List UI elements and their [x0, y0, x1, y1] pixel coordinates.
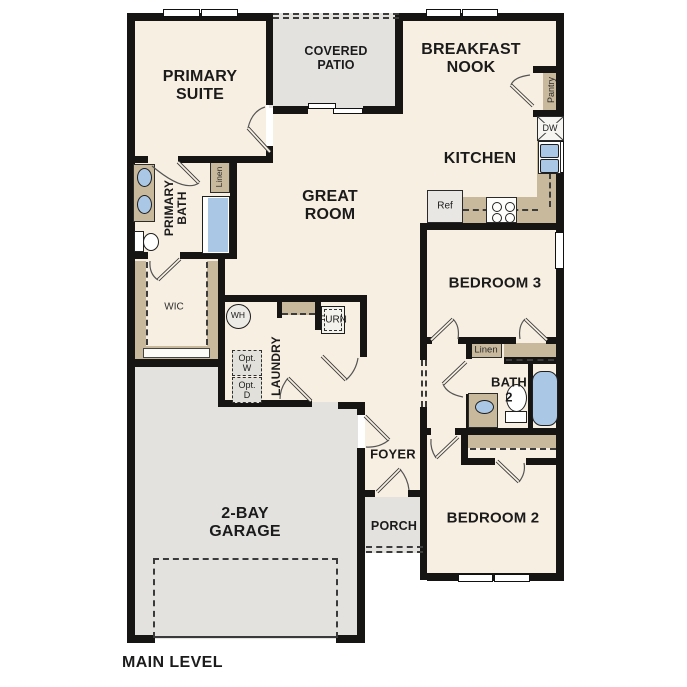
water-heater-label: WH [231, 311, 245, 321]
kitchen-sink-basin-icon [540, 159, 559, 173]
wic-shelf-left [135, 261, 146, 346]
wall-wic-bottom [135, 359, 218, 367]
optional-dryer-label: Opt. D [238, 380, 255, 400]
window-suite-b [201, 9, 238, 17]
room-label-great-room: GREAT ROOM [302, 188, 358, 224]
room-label-porch: PORCH [371, 519, 417, 533]
wall-suite-right-stub [266, 146, 273, 156]
wic-rod-dash-left [146, 262, 148, 345]
wall-pantry-top [533, 66, 564, 73]
wall-garage-bottom-right [336, 635, 358, 643]
wall-closet2-bottom-b [526, 458, 564, 465]
refrigerator-label: Ref [437, 200, 453, 211]
room-label-primary-suite: PRIMARY SUITE [163, 68, 238, 104]
optional-washer-label: Opt. W [238, 353, 255, 373]
wall-bed3-bottom-a [427, 337, 432, 344]
laundry-niche-dash [282, 313, 315, 315]
burner-icon [492, 213, 502, 223]
wall-patio-bottom-a [273, 106, 308, 114]
wall-suite-bottom-b [178, 156, 273, 163]
primary-bath-sink-icon [137, 168, 152, 187]
room-label-primary-bath: PRIMARY BATH [163, 180, 189, 236]
floor-great-room [225, 163, 420, 300]
wall-furn-right [360, 302, 367, 357]
floor-plan: PRIMARY SUITE COVERED PATIO BREAKFAST NO… [0, 0, 687, 687]
porch-open-edge-a [366, 546, 423, 548]
wall-linen-hall-left [466, 343, 472, 359]
patio-open-edge-b [273, 17, 399, 19]
wall-bed3-left [420, 223, 427, 360]
bed3-closet-rod-dash [506, 359, 554, 361]
burner-icon [492, 202, 502, 212]
wall-foyer-bottom-b [408, 490, 427, 497]
wall-laundry-top [218, 295, 367, 302]
patio-slider-panel [308, 103, 336, 109]
wic-rod-dash-right [206, 262, 208, 345]
wall-left-garage [127, 363, 135, 643]
room-label-wic: WIC [164, 301, 183, 312]
wall-hall-bottom [338, 402, 357, 409]
wall-bed3-bottom-c [546, 337, 556, 344]
bed2-closet-shelf [468, 435, 558, 448]
wall-garage-bottom-left [135, 635, 155, 643]
bath2-tub-icon [532, 371, 558, 426]
wall-garage-right-a [357, 402, 365, 415]
primary-shower-glass [208, 198, 228, 252]
wall-suite-bottom-a [135, 156, 148, 163]
hall-cased-opening-a [421, 360, 423, 407]
floor-foyer-hall [365, 300, 420, 497]
wall-bath1-bottom-a [135, 252, 148, 259]
patio-open-edge-a [273, 13, 399, 15]
wall-top-suite [127, 13, 273, 21]
window-nook-a [426, 9, 461, 17]
bed3-closet-shelf [504, 343, 556, 358]
window-bed2-a [458, 574, 493, 582]
room-label-garage: 2-BAY GARAGE [209, 505, 280, 541]
wall-right [556, 13, 564, 580]
garage-door-line [155, 636, 336, 638]
hall-cased-opening-b [425, 360, 427, 407]
room-label-bath-2: BATH 2 [491, 375, 527, 404]
porch-open-edge-b [366, 551, 423, 553]
pantry-label: Pantry [546, 77, 556, 103]
room-label-breakfast-nook: BREAKFAST NOOK [421, 41, 521, 77]
wall-patio-bottom-b [363, 106, 403, 114]
wall-bath2-bottom-a [427, 428, 431, 435]
floor-great-upper [273, 108, 420, 163]
wic-shelf-board [143, 348, 210, 358]
linen-closet-label: Linen [474, 346, 497, 357]
burner-icon [505, 213, 515, 223]
kitchen-sink-basin-icon [540, 144, 559, 158]
furnace-label: FURN [319, 314, 347, 325]
patio-slider-panel [333, 108, 363, 114]
room-label-bedroom-3: BEDROOM 3 [449, 276, 542, 293]
room-label-laundry: LAUNDRY [270, 336, 284, 396]
garage-door-swing-zone [153, 558, 338, 638]
window-nook-b [462, 9, 498, 17]
wall-wic-right [218, 259, 225, 407]
room-label-foyer: FOYER [370, 448, 416, 463]
primary-toilet-icon [143, 233, 159, 251]
wall-closet2-bottom-a [461, 458, 495, 465]
room-label-kitchen: KITCHEN [444, 150, 517, 168]
wall-niche-stub-a [277, 302, 282, 318]
stove-icon [486, 197, 517, 223]
wall-kitchen-bed3 [420, 223, 564, 230]
burner-icon [505, 202, 515, 212]
wic-shelf-right [207, 261, 218, 346]
wall-bath2-bottom-b [455, 428, 564, 435]
wall-foyer-bottom-a [365, 490, 375, 497]
window-suite-a [163, 9, 200, 17]
wall-bath1-right [230, 156, 237, 259]
plan-geometry-layer [0, 0, 687, 687]
dishwasher-label: DW [543, 123, 558, 133]
window-bed2-b [494, 574, 530, 582]
plan-title: MAIN LEVEL [122, 654, 223, 672]
linen-closet-label: Linen [215, 167, 225, 188]
wall-garage-right-b [357, 448, 365, 643]
bath2-toilet-tank-icon [505, 411, 527, 423]
bed2-closet-rod-dash [470, 448, 556, 450]
window-bed3 [555, 232, 564, 269]
wall-suite-right [266, 21, 273, 105]
primary-bath-sink-icon [137, 195, 152, 214]
wall-patio-right [395, 13, 403, 108]
room-label-covered-patio: COVERED PATIO [304, 44, 367, 72]
room-label-bedroom-2: BEDROOM 2 [447, 511, 540, 528]
